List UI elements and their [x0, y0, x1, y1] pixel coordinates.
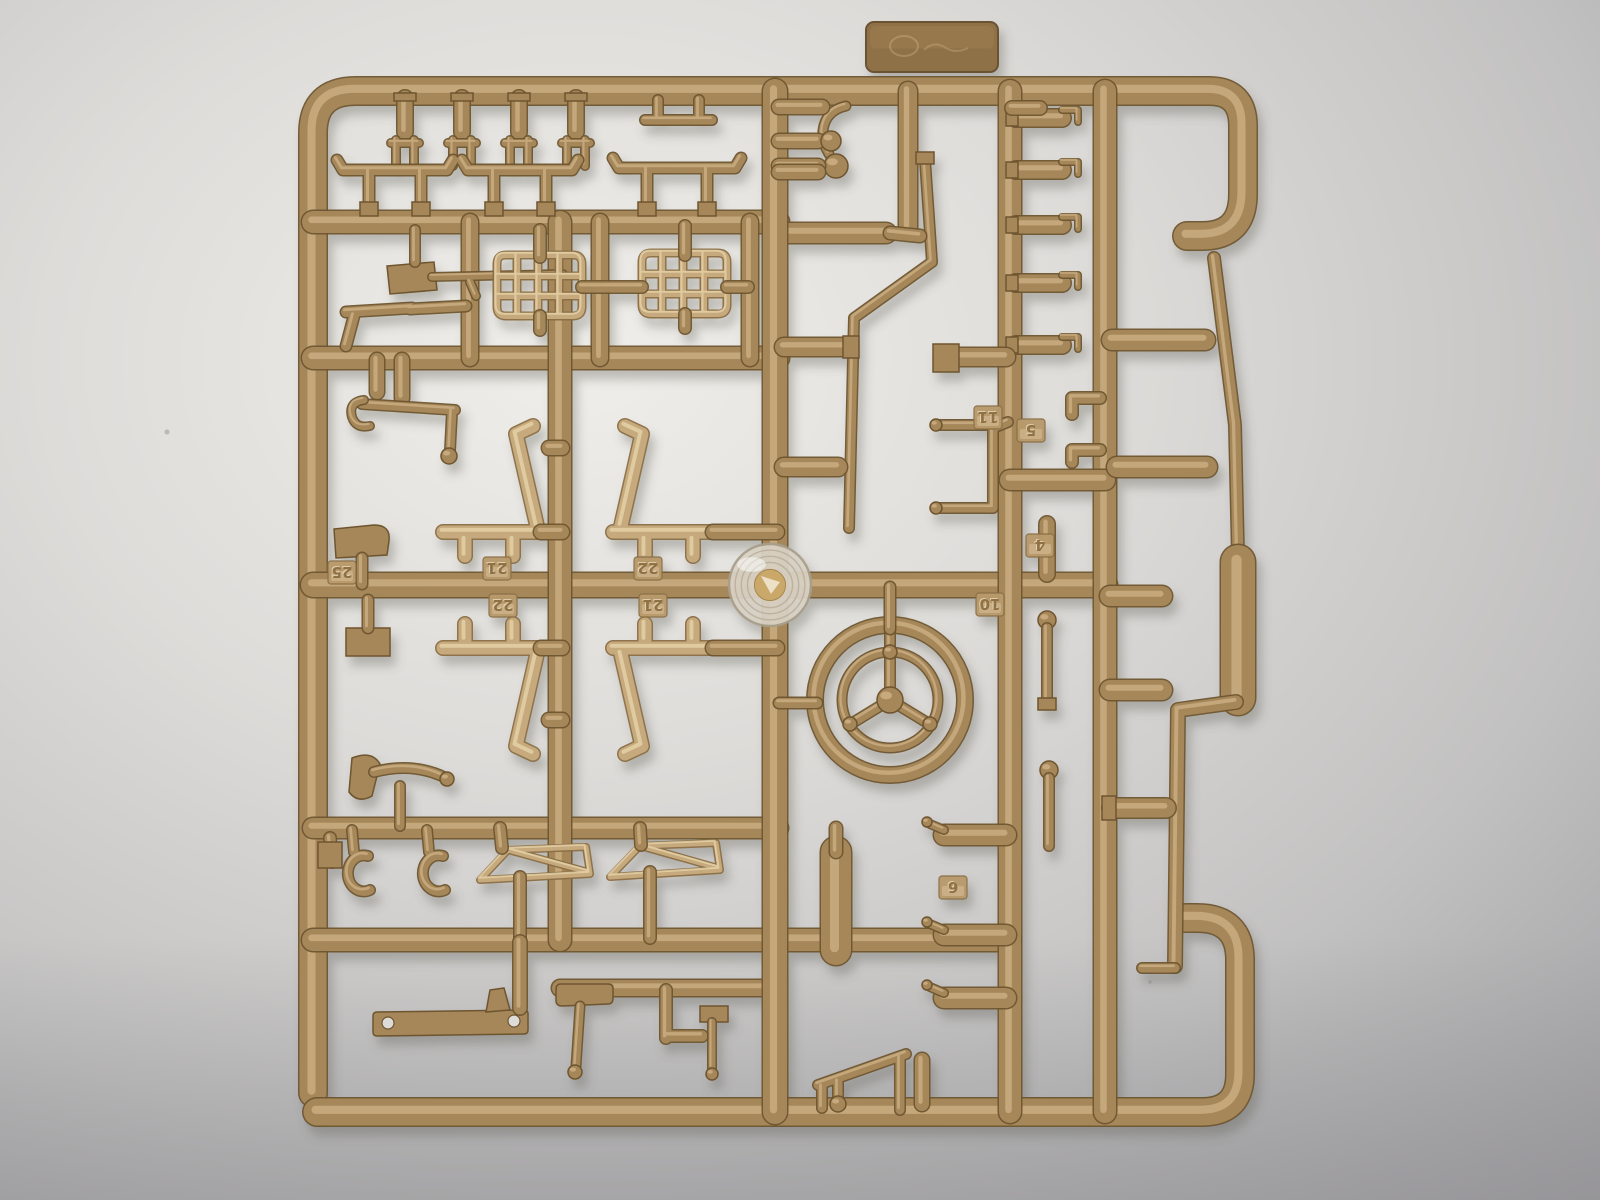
part-number-text: 25 [332, 563, 353, 581]
part-number-text: 4 [1035, 536, 1045, 554]
grab-handle-tip-2 [930, 502, 942, 514]
bracket-hole-1 [382, 1017, 394, 1029]
part-number-text: 5 [1026, 421, 1036, 439]
part-number-tag-21: 2121 [483, 557, 511, 580]
gate-pad-left [318, 842, 342, 868]
part-number-text: 22 [493, 596, 514, 614]
runner-h-585 [312, 583, 1106, 585]
gate-capsule-355 [957, 355, 1007, 357]
sprue-id-tab [866, 22, 998, 72]
hammer-head [556, 984, 613, 1006]
gate-pad-355 [933, 344, 959, 372]
part-number-text: 11 [978, 408, 999, 426]
mid-capsule-gate [843, 336, 859, 358]
gate-capsule-800 [1111, 806, 1167, 808]
part-number-tag-10: 1010 [976, 593, 1004, 616]
part-number-text: 6 [948, 878, 958, 896]
bracket-bar [373, 1010, 528, 1036]
dust-speck [1148, 980, 1152, 984]
part-number-tag-5: 55 [1017, 419, 1045, 442]
right-rail-gate [1141, 966, 1176, 968]
valve-spout-ball-2 [922, 917, 932, 927]
bracket-gate [519, 940, 521, 1008]
runner-v-908 [907, 89, 909, 228]
gate-pad-800 [1102, 796, 1116, 820]
cylinder-part [835, 850, 837, 950]
bent-rod-stub [889, 231, 921, 236]
spoke-bump-right [923, 717, 937, 731]
pad-gate [367, 598, 369, 628]
horn-tip [440, 772, 454, 786]
hammer-ball [568, 1065, 582, 1079]
grab-handle-tip-1 [930, 419, 942, 431]
part-number-tag-21: 2121 [639, 594, 667, 617]
mold-hub-disc [729, 544, 811, 626]
spoke-bump-left [843, 717, 857, 731]
sprue-photo: 2525212122222222212111115544101066 [0, 0, 1600, 1200]
valve-spout-ball-3 [922, 980, 932, 990]
part-number-tag-22: 2222 [634, 557, 662, 580]
hammer-handle [575, 1004, 581, 1066]
runner-h-940 [312, 938, 1011, 940]
rifle-gate [414, 228, 416, 262]
bottom-capsule [921, 1058, 923, 1104]
vb-ball-stud [821, 131, 841, 151]
part-number-tag-22: 2222 [489, 594, 517, 617]
ball-lever-ball [824, 154, 848, 178]
dust-speck [165, 430, 170, 435]
runner-h-233 [774, 231, 887, 233]
part-number-text: 10 [980, 595, 1001, 613]
part-number-tag-6: 66 [939, 876, 967, 899]
part-number-text: 21 [643, 596, 664, 614]
runner-bridge-480 [1009, 478, 1106, 480]
cylinder-gate [835, 826, 837, 852]
photo-canvas: 2525212122222222212111115544101066 [0, 0, 1600, 1200]
mallet-shaft [711, 1020, 713, 1068]
lever-1047-foot [1038, 698, 1056, 710]
part-number-tag-11: 1111 [974, 406, 1002, 429]
bracket-hole-2 [508, 1015, 520, 1027]
lever-1047 [1046, 626, 1048, 700]
bent-rod-gate [916, 152, 934, 164]
part-number-text: 21 [487, 559, 508, 577]
mallet-ball [706, 1068, 718, 1080]
steering-wheel-hub [877, 687, 903, 713]
paddle-gate [361, 556, 363, 584]
jack-ball [441, 448, 457, 464]
seesaw-ball [830, 1096, 846, 1112]
runner-v-1010 [1009, 89, 1011, 1112]
right-rail-pad [1237, 560, 1239, 698]
valve-spout-ball-1 [922, 817, 932, 827]
lever-1049 [1048, 776, 1050, 846]
runner-h-828 [312, 826, 779, 828]
part-number-tag-25: 2525 [328, 561, 356, 584]
part-number-tag-4: 44 [1026, 534, 1054, 557]
runner-h-222 [312, 220, 779, 222]
spoke-bump-top [883, 645, 897, 659]
part-number-text: 22 [638, 559, 659, 577]
runner-v-560 [559, 220, 561, 940]
cap-top-right [1011, 106, 1041, 108]
